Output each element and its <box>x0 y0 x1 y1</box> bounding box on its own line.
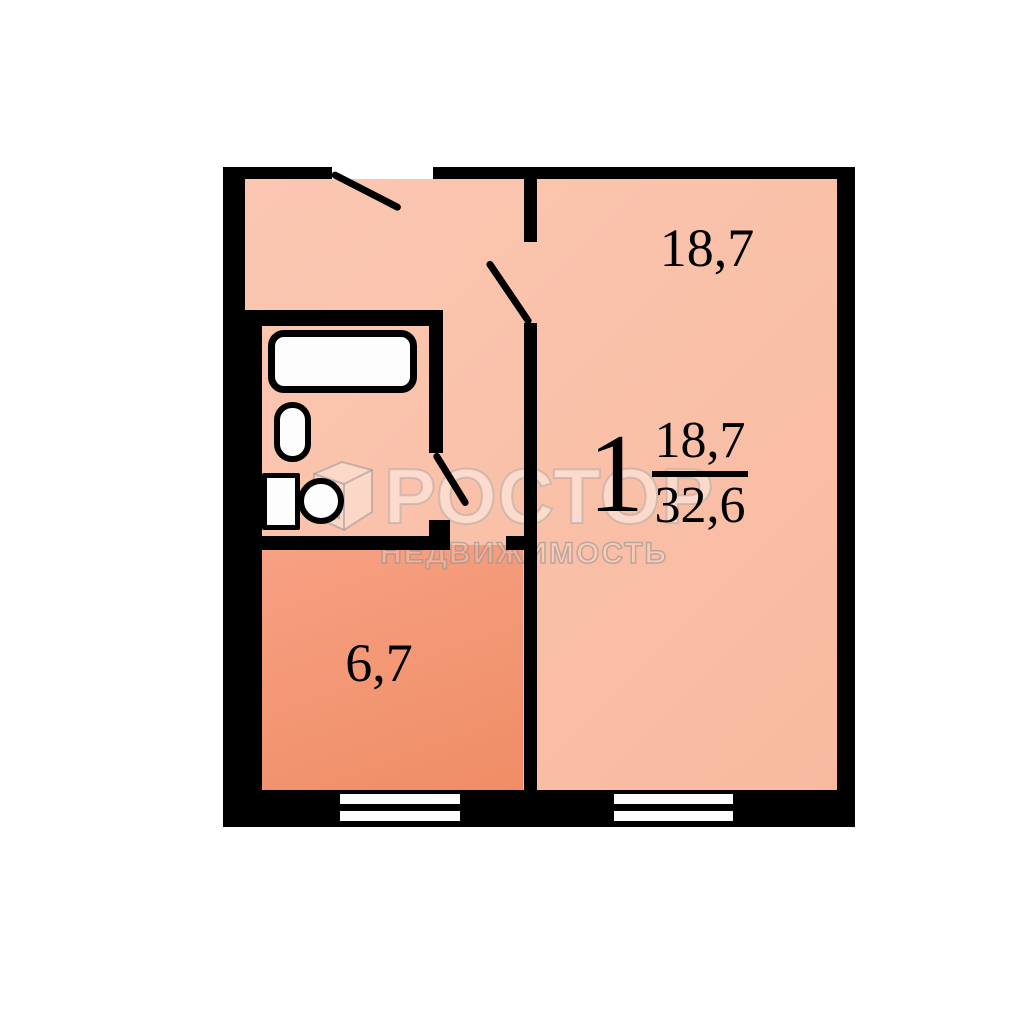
wall-partition-lower <box>524 323 537 790</box>
kitchen-window <box>338 792 462 823</box>
window-pane <box>612 792 735 806</box>
wall-left-upper <box>223 167 245 310</box>
bathtub-icon <box>268 330 417 393</box>
wall-top-right-segment <box>433 167 855 179</box>
wall-bathroom-top <box>245 310 443 326</box>
wall-partition-upper <box>524 179 537 242</box>
area-fraction-bar <box>652 471 748 477</box>
wall-bathroom-right <box>429 326 443 453</box>
wall-kitchen-top <box>245 536 450 550</box>
window-pane <box>612 809 735 823</box>
wall-right <box>837 167 855 827</box>
apartment-rooms-count: 1 <box>588 418 644 530</box>
wall-left-lower <box>223 310 262 827</box>
toilet-tank-icon <box>262 473 300 530</box>
living-area-numerator: 18,7 <box>652 414 748 469</box>
total-area-denominator: 32,6 <box>652 479 748 534</box>
kitchen-area-label: 6,7 <box>345 632 413 694</box>
sink-icon <box>274 402 311 462</box>
toilet-bowl-icon <box>298 478 344 524</box>
window-pane <box>338 809 462 823</box>
apartment-area-fraction: 18,7 32,6 <box>652 414 748 533</box>
living-room-area-label: 18,7 <box>660 217 755 279</box>
wall-bottom <box>223 790 855 827</box>
window-pane <box>338 792 462 806</box>
living-room-window <box>612 792 735 823</box>
floor-plan: РОСТОР НЕДВИЖИМОСТЬ 18,7 6,7 1 18,7 32,6 <box>0 0 1024 1024</box>
